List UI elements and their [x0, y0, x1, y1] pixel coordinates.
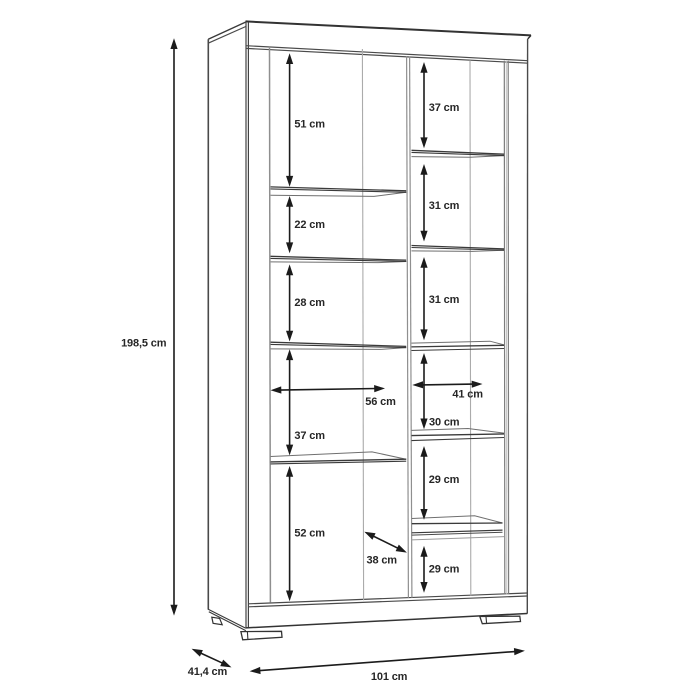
svg-text:31 cm: 31 cm [429, 200, 460, 212]
svg-text:51 cm: 51 cm [294, 118, 325, 130]
svg-text:38 cm: 38 cm [367, 554, 398, 566]
svg-text:28 cm: 28 cm [294, 297, 325, 309]
svg-text:198,5 cm: 198,5 cm [121, 337, 167, 349]
svg-text:31 cm: 31 cm [429, 294, 460, 306]
svg-text:56 cm: 56 cm [365, 396, 396, 408]
svg-text:29 cm: 29 cm [429, 474, 460, 486]
svg-text:30 cm: 30 cm [429, 417, 460, 429]
svg-text:22 cm: 22 cm [294, 219, 325, 231]
svg-text:101 cm: 101 cm [371, 671, 408, 683]
svg-text:37 cm: 37 cm [429, 102, 460, 114]
svg-text:37 cm: 37 cm [294, 430, 325, 442]
svg-text:41,4 cm: 41,4 cm [188, 666, 228, 678]
svg-text:29 cm: 29 cm [429, 564, 460, 576]
svg-text:52 cm: 52 cm [294, 527, 325, 539]
svg-text:41 cm: 41 cm [452, 388, 483, 400]
